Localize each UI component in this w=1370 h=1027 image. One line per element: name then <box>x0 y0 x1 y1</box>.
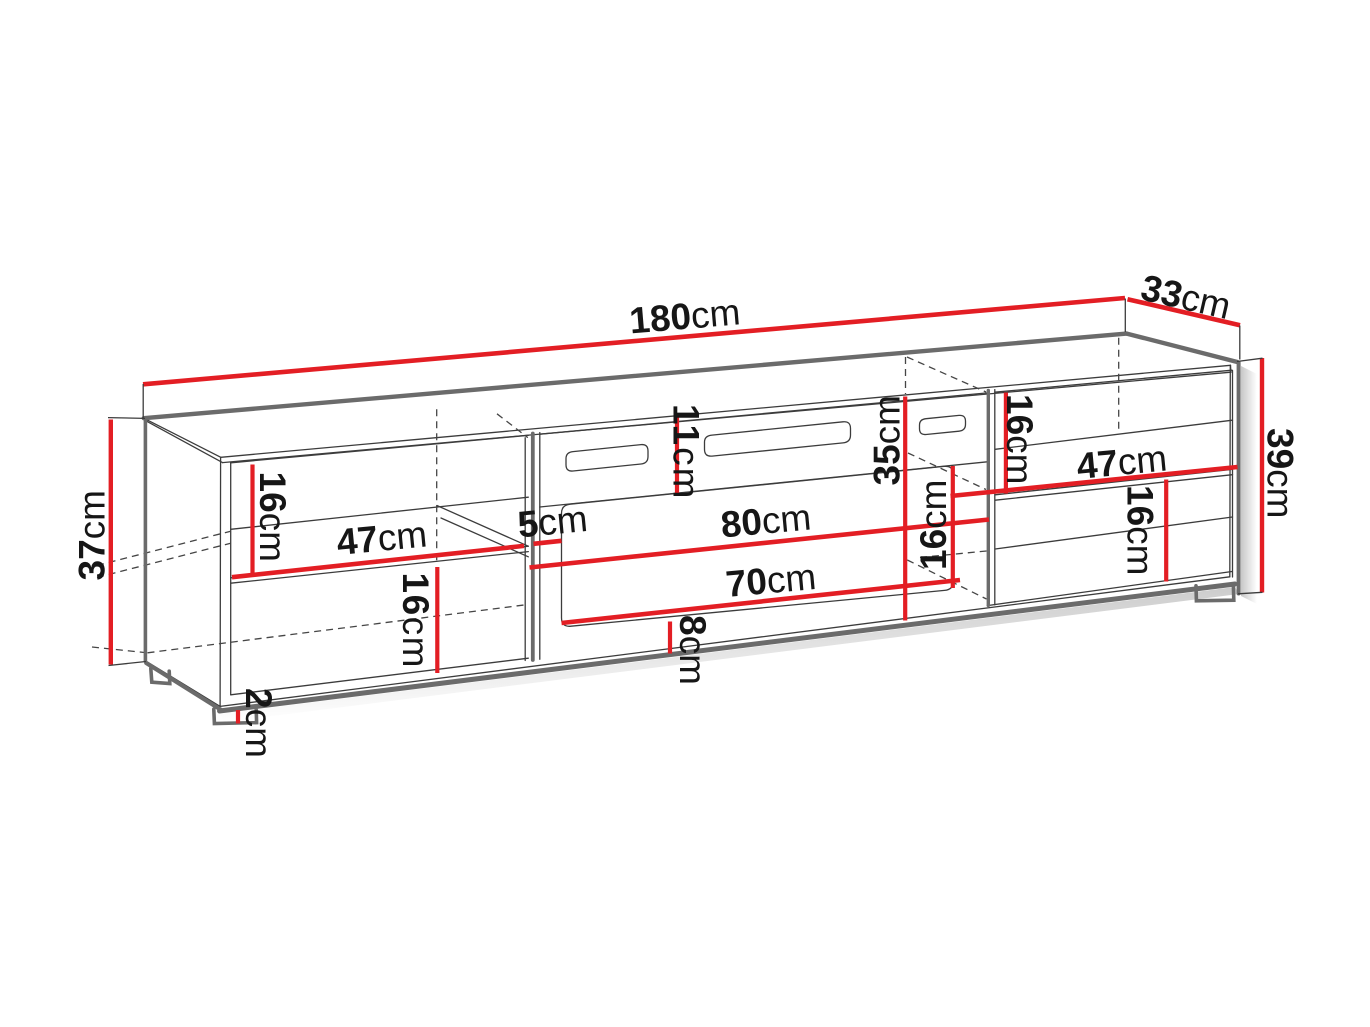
svg-text:80cm: 80cm <box>719 496 813 545</box>
svg-text:2cm: 2cm <box>238 688 279 758</box>
svg-text:39cm: 39cm <box>1260 428 1301 518</box>
svg-text:47cm: 47cm <box>335 513 429 562</box>
svg-text:37cm: 37cm <box>72 490 113 580</box>
svg-text:11cm: 11cm <box>666 404 707 500</box>
svg-text:35cm: 35cm <box>867 395 908 485</box>
svg-text:70cm: 70cm <box>724 556 818 605</box>
svg-text:16cm: 16cm <box>913 480 954 570</box>
svg-text:16cm: 16cm <box>999 394 1040 484</box>
svg-text:5cm: 5cm <box>516 498 590 546</box>
svg-text:16cm: 16cm <box>1120 485 1161 575</box>
svg-text:8cm: 8cm <box>672 615 713 685</box>
svg-text:47cm: 47cm <box>1075 437 1169 486</box>
svg-text:16cm: 16cm <box>252 472 293 562</box>
svg-text:16cm: 16cm <box>395 573 436 669</box>
